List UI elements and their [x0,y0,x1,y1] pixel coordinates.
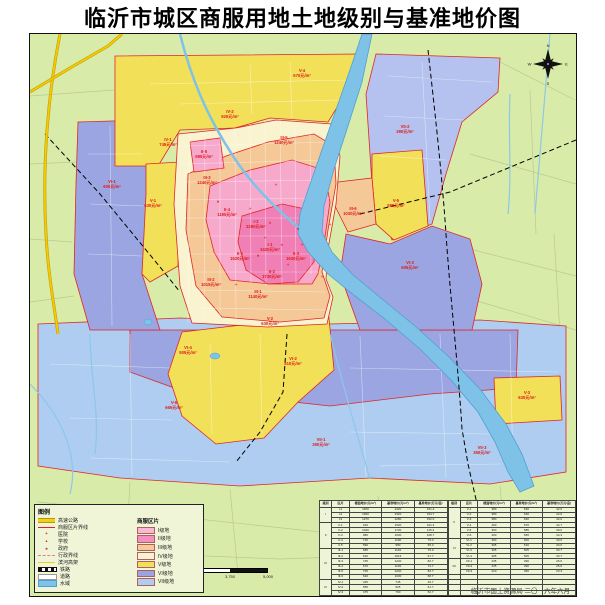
grade-swatch [137,561,155,569]
svg-text:+: + [248,206,251,211]
legend-grade-II级地: II级地 [137,535,200,544]
compass-w: W [528,62,532,67]
legend-item-label: 道路 [60,573,70,580]
legend-item-water: 水域 [38,580,133,587]
legend-grade-IV级地: IV级地 [137,552,200,561]
admin-boundary-icon [38,555,55,556]
svg-text:+: + [234,282,237,287]
price-table-right: 级别区片楼面地价(元/m²)基准地价(元/m²)基准地价(万元/亩)VV-138… [448,500,577,596]
elevated-road-icon [38,562,55,563]
map-title: 临沂市城区商服用地土地级别与基准地价图 [0,1,605,33]
highway-icon [38,518,55,523]
legend-item-label: 医院 [58,531,68,538]
legend-item-label: 行政界线 [58,552,78,559]
price-table-left: 级别区片楼面地价(元/m²)基准地价(元/m²)基准地价(万元/亩)II-114… [319,500,448,596]
road-icon [38,574,57,580]
legend-grades-header: 商服区片 [137,517,200,525]
svg-text:+: + [286,262,289,267]
grade-label: II级地 [158,535,171,542]
grade-swatch [137,578,155,586]
legend-grade-VII级地: VII级地 [137,578,200,587]
price-table: 级别区片楼面地价(元/m²)基准地价(元/m²)基准地价(万元/亩)II-114… [319,500,576,596]
district-boundary-icon [38,527,55,529]
legend-item-label: 商服区片界线 [58,524,88,531]
grade-swatch [137,570,155,578]
legend-item-government: ★政府 [38,545,133,552]
legend-item-road: 道路 [38,573,133,580]
grade-label: I级地 [158,527,169,534]
legend-item-admin-boundary: 行政界线 [38,552,133,559]
grade-swatch [137,535,155,543]
svg-text:★: ★ [280,243,283,247]
svg-text:+: + [274,182,277,187]
grade-label: VI级地 [158,570,173,577]
svg-text:★: ★ [268,221,271,225]
water-icon [38,580,57,587]
grade-label: VII级地 [158,578,174,585]
legend-item-district-boundary: 商服区片界线 [38,524,133,531]
compass-e: E [565,62,568,67]
grade-label: III级地 [158,544,172,551]
legend-item-school: ▲学校 [38,538,133,545]
legend-item-label: 滨河高架 [58,559,78,566]
legend-item-label: 高速公路 [58,517,78,524]
legend-symbol-list: 高速公路商服区片界线+医院▲学校★政府行政界线滨河高架铁路道路水域 [38,517,133,587]
grade-label: V级地 [158,561,171,568]
grade-swatch [137,544,155,552]
credit-text: 临沂市国土资源局 二〇一六年六月 [471,585,570,595]
legend-title: 图例 [38,507,200,516]
grade-label: IV级地 [158,553,173,560]
legend-item-highway: 高速公路 [38,517,133,524]
legend-panel: 图例 高速公路商服区片界线+医院▲学校★政府行政界线滨河高架铁路道路水域 商服区… [34,504,204,593]
legend-item-elevated-road: 滨河高架 [38,559,133,566]
legend-grade-I级地: I级地 [137,526,200,535]
legend-item-railway: 铁路 [38,566,133,573]
legend-item-hospital: +医院 [38,531,133,538]
lake [144,319,152,325]
map-canvas: + + + + + + + + ▲ ▲ ▲ ★ ★ V-4670元/m²IV-2… [29,33,577,597]
compass-s: S [547,81,550,86]
compass-n: N [547,43,550,48]
hospital-icon: + [38,532,55,537]
legend-item-label: 政府 [58,545,68,552]
zone-v-east [372,150,428,240]
legend-grade-III级地: III级地 [137,543,200,552]
legend-item-label: 铁路 [60,566,70,573]
legend-grade-VI级地: VI级地 [137,569,200,578]
table-row: IV-347579052.7 [320,590,448,595]
zone-vi-right [340,226,482,330]
lake [210,353,220,359]
svg-text:+: + [320,274,323,279]
school-icon: ▲ [38,539,55,544]
legend-grade-list: 商服区片 I级地II级地III级地IV级地V级地VI级地VII级地 [133,517,200,587]
legend-item-label: 学校 [58,538,68,545]
railway-icon [38,567,57,572]
legend-item-label: 水域 [60,580,70,587]
svg-text:+: + [263,235,266,240]
legend-grade-V级地: V级地 [137,560,200,569]
grade-swatch [137,527,155,535]
government-icon: ★ [38,546,55,551]
page: 临沂市城区商服用地土地级别与基准地价图 [0,0,605,605]
svg-text:+: + [328,222,331,227]
svg-text:+: + [300,242,303,247]
grade-swatch [137,552,155,560]
zone-v-left-strip [142,162,180,282]
zone-v-bottom-right [494,376,562,424]
